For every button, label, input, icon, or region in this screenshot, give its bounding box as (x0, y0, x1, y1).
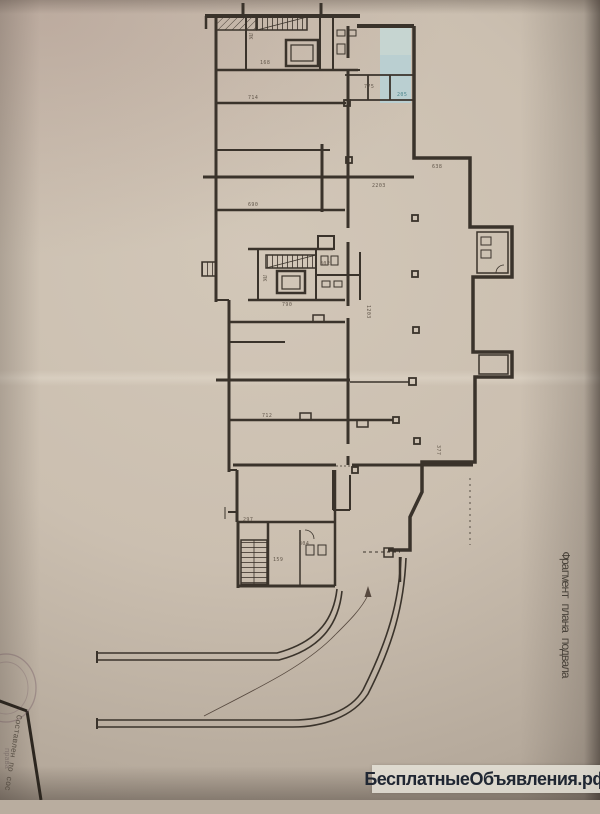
dimension-label: 304 (299, 541, 309, 547)
title-block-note-faint: права (2, 748, 10, 808)
dimension-label: 297 (243, 517, 253, 523)
drawing-caption: Фрагмент плана подвала (558, 552, 572, 767)
dimension-label: 638 (432, 164, 442, 170)
plan-annotation-layer: ЛК1687147752056382203690ЛК30279012037123… (0, 0, 600, 800)
dimension-label: ЛК (247, 33, 253, 40)
dimension-label: 790 (282, 302, 292, 308)
watermark-text: БесплатныеОбъявления.рф (364, 769, 600, 790)
dimension-label: 1203 (365, 305, 371, 319)
dimension-label: 205 (397, 92, 407, 98)
dimension-label: 377 (435, 445, 441, 455)
dimension-label: 712 (262, 413, 272, 419)
dimension-label: ЛК (261, 275, 267, 282)
dimension-label: 775 (364, 84, 374, 90)
dimension-label: 714 (248, 95, 258, 101)
dimension-label: 2203 (372, 183, 386, 189)
dimension-label: 302 (320, 261, 330, 267)
title-block-note-faint-text: права (2, 748, 10, 769)
drawing-caption-text: Фрагмент плана подвала (558, 552, 572, 677)
dimension-label: 690 (248, 202, 258, 208)
dimension-label: 159 (273, 557, 283, 563)
dimension-label: 168 (260, 60, 270, 66)
watermark-bar: БесплатныеОбъявления.рф (372, 765, 600, 793)
